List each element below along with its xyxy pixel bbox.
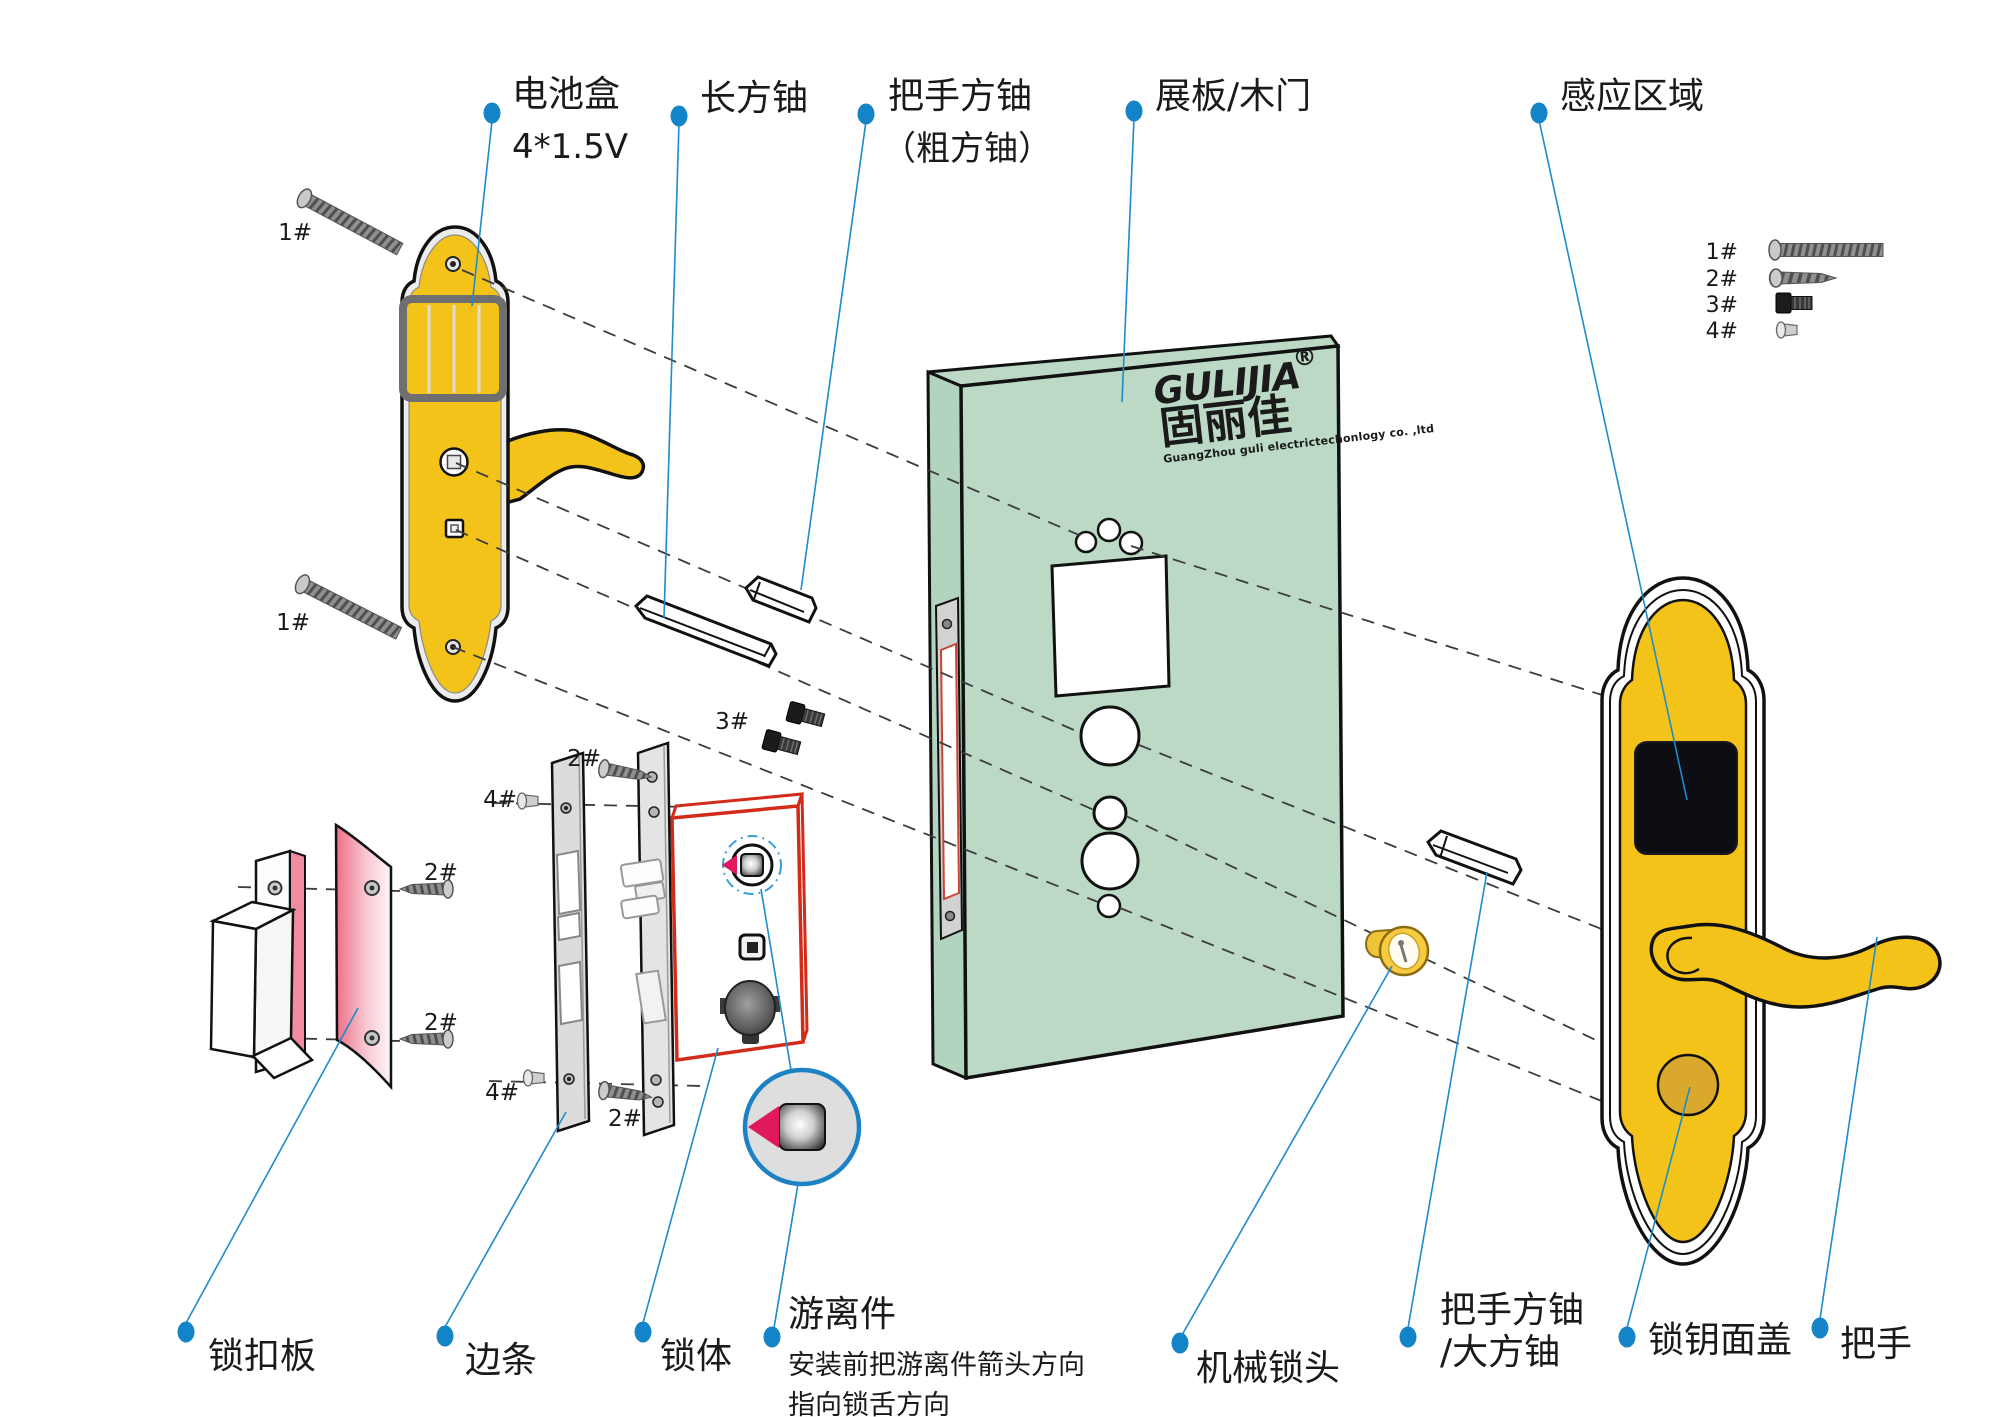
lower-square-hole xyxy=(446,520,463,537)
key-cover-cap xyxy=(1658,1055,1718,1115)
label-lock-body: 锁体 xyxy=(660,1336,732,1377)
long-shaft-bar xyxy=(636,596,776,666)
label-strike-plate: 锁扣板 xyxy=(208,1336,316,1377)
label-long-shaft: 长方铀 xyxy=(700,78,808,119)
bolt-3-b xyxy=(762,729,802,758)
spindle-hole xyxy=(441,449,468,476)
legend-item-3: 3# xyxy=(1706,293,1738,318)
label-floating-part: 游离件 xyxy=(788,1294,896,1335)
exterior-panel xyxy=(1602,578,1940,1264)
pin-4-top xyxy=(518,793,539,809)
pin-4-bottom xyxy=(524,1070,545,1086)
lock-body xyxy=(672,794,807,1060)
logo-registered-mark: ® xyxy=(1291,342,1318,373)
handle-shaft-bar-thick xyxy=(746,577,816,622)
label-handle-shaft-alt: （粗方铀） xyxy=(882,129,1052,169)
big-shaft-bar xyxy=(1428,831,1521,884)
label-floating-note2: 指向锁舌方向 xyxy=(788,1390,950,1417)
label-floating-note1: 安装前把游离件箭头方向 xyxy=(788,1350,1085,1381)
legend-item-4: 4# xyxy=(1706,319,1738,344)
door-edge-plate xyxy=(936,598,962,939)
strike-plate xyxy=(336,825,391,1087)
bolt-3-a xyxy=(786,701,826,730)
label-battery-spec: 4*1.5V xyxy=(512,127,628,167)
marker-screw4-top: 4# xyxy=(483,787,517,813)
interior-handle xyxy=(495,430,643,506)
mechanical-cylinder xyxy=(1366,927,1428,975)
label-handle: 把手 xyxy=(1840,1324,1912,1365)
marker-screw1-bottom: 1# xyxy=(276,610,310,636)
marker-screw3: 3# xyxy=(715,709,749,735)
screw-legend xyxy=(1769,240,1883,338)
marker-screw1-top: 1# xyxy=(278,220,312,246)
legend-item-2: 2# xyxy=(1706,267,1738,292)
exploded-lock-diagram: GULIJIA ® 固丽佳 GuangZhou guli electrictec… xyxy=(0,0,2008,1417)
lockbody-square-hole xyxy=(740,935,764,959)
label-handle-shaft: 把手方铀 xyxy=(888,76,1032,117)
label-battery-box: 电池盒 xyxy=(512,74,620,115)
label-key-cover: 锁钥面盖 xyxy=(1648,1320,1792,1361)
strike-plate-assembly xyxy=(211,825,453,1087)
interior-panel xyxy=(402,227,643,701)
battery-box xyxy=(403,299,503,398)
diagram-canvas: GULIJIA ® 固丽佳 GuangZhou guli electrictec… xyxy=(0,0,2008,1417)
label-mech-cylinder: 机械锁头 xyxy=(1196,1348,1340,1389)
label-big-shaft-2: /大方铀 xyxy=(1440,1332,1560,1373)
marker-screw2-strike-bottom: 2# xyxy=(424,1010,458,1036)
label-sensing-area: 感应区域 xyxy=(1560,76,1704,117)
door-panel: GULIJIA ® 固丽佳 GuangZhou guli electrictec… xyxy=(928,330,1435,1078)
legend-item-1: 1# xyxy=(1706,240,1738,265)
latch-bolt xyxy=(621,859,666,919)
lock-faceplate xyxy=(518,743,675,1135)
label-edge-strip: 边条 xyxy=(465,1340,537,1381)
marker-screw4-bottom: 4# xyxy=(485,1080,519,1106)
marker-screw2-strike-top: 2# xyxy=(424,860,458,886)
label-big-shaft-1: 把手方铀 xyxy=(1440,1290,1584,1331)
marker-screw2-faceplate-top: 2# xyxy=(567,746,601,772)
edge-strip xyxy=(552,753,589,1131)
marker-screw2-faceplate-bottom: 2# xyxy=(608,1106,642,1132)
label-door: 展板/木门 xyxy=(1155,76,1311,117)
